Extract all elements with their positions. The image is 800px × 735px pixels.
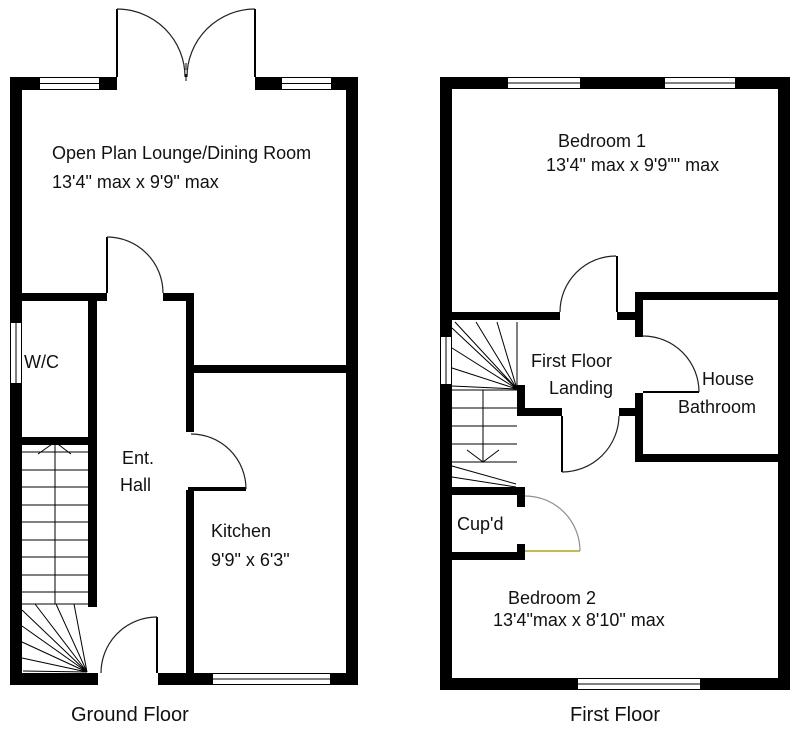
bedroom1-dimensions: 13'4" max x 9'9"" max [546, 155, 719, 175]
front-door [101, 617, 157, 673]
bedroom2-window [578, 679, 700, 689]
wall-landing-bottom-left [517, 408, 562, 416]
bathroom-label-line2: Bathroom [678, 397, 756, 417]
wall-hall-lower [186, 490, 194, 673]
stairs-window [441, 337, 451, 384]
lounge-dimensions: 13'4" max x 9'9" max [52, 172, 219, 192]
wall-cupboard-top [452, 487, 525, 495]
bathroom-label-line1: House [702, 369, 754, 389]
kitchen-window [213, 674, 330, 684]
bedroom2-dimensions: 13'4"max x 8'10" max [493, 610, 665, 630]
wall-wc-top [10, 293, 107, 301]
wall-right [778, 77, 790, 690]
bathroom-door [643, 336, 699, 392]
wc-window [11, 323, 21, 383]
bedroom1-label: Bedroom 1 [558, 131, 646, 151]
stair-winder-fan-bottom [452, 466, 516, 487]
bedroom1-window-left [508, 78, 580, 88]
kitchen-label: Kitchen [211, 521, 271, 541]
wall-bathroom-left-lower [635, 393, 643, 454]
bedroom1-window-right [665, 78, 735, 88]
wc-label: W/C [24, 352, 59, 372]
hall-kitchen-door [188, 434, 246, 489]
floor-plan-drawing: Open Plan Lounge/Dining Room 13'4" max x… [0, 0, 800, 735]
front-door-opening [98, 673, 158, 685]
lounge-label: Open Plan Lounge/Dining Room [52, 143, 311, 163]
lounge-window-right [282, 78, 331, 89]
wall-bathroom-top [635, 292, 778, 300]
first-floor-plan: Bedroom 1 13'4" max x 9'9"" max First Fl… [440, 77, 790, 726]
wall-bedroom1-bottom-left [452, 312, 560, 320]
bedroom2-label: Bedroom 2 [508, 588, 596, 608]
wall-right [346, 77, 358, 685]
stair-treads [452, 390, 517, 462]
first-floor-doors [525, 256, 699, 551]
landing-door [562, 416, 619, 472]
bedroom1-door [560, 256, 617, 312]
hall-label-line1: Ent. [122, 448, 154, 468]
stair-treads [22, 445, 88, 604]
lounge-hall-door [107, 237, 163, 293]
floor-plan-canvas: Open Plan Lounge/Dining Room 13'4" max x… [0, 0, 800, 735]
first-floor-staircase [452, 322, 517, 487]
ground-floor-title: Ground Floor [71, 704, 189, 726]
lounge-window-left [40, 78, 99, 89]
hall-label-line2: Hall [120, 475, 151, 495]
wall-landing-bottom-right [619, 408, 643, 416]
first-floor-labels: Bedroom 1 13'4" max x 9'9"" max First Fl… [457, 131, 756, 726]
landing-label-line1: First Floor [531, 351, 612, 371]
wall-bathroom-left-upper [635, 300, 643, 337]
ground-floor-outer-walls [10, 77, 358, 685]
landing-label-line2: Landing [549, 378, 613, 398]
french-doors [117, 9, 255, 82]
ground-floor-windows [11, 78, 331, 684]
wall-cupboard-bottom [452, 552, 525, 560]
stair-winder-fan [22, 604, 87, 672]
wall-wc-bottom [22, 437, 97, 445]
ground-floor-interior-walls [10, 293, 346, 673]
ground-floor-staircase [22, 442, 88, 672]
ground-floor-doors [101, 9, 255, 673]
ground-floor-labels: Open Plan Lounge/Dining Room 13'4" max x… [24, 143, 311, 726]
stair-winder-fan-top [452, 322, 517, 389]
wall-top [440, 77, 790, 89]
cupboard-label: Cup'd [457, 514, 503, 534]
ground-floor-plan: Open Plan Lounge/Dining Room 13'4" max x… [10, 9, 358, 726]
wall-hall-upper [186, 293, 194, 432]
wall-wc-stairs-right [88, 301, 97, 607]
wall-bathroom-bottom [635, 454, 778, 462]
wall-cupboard-right-upper [517, 495, 525, 507]
wall-stairs-right [517, 385, 525, 408]
kitchen-dimensions: 9'9" x 6'3" [211, 550, 290, 570]
cupboard-door [525, 496, 580, 551]
first-floor-title: First Floor [570, 704, 660, 726]
wall-kitchen-top [194, 365, 346, 373]
